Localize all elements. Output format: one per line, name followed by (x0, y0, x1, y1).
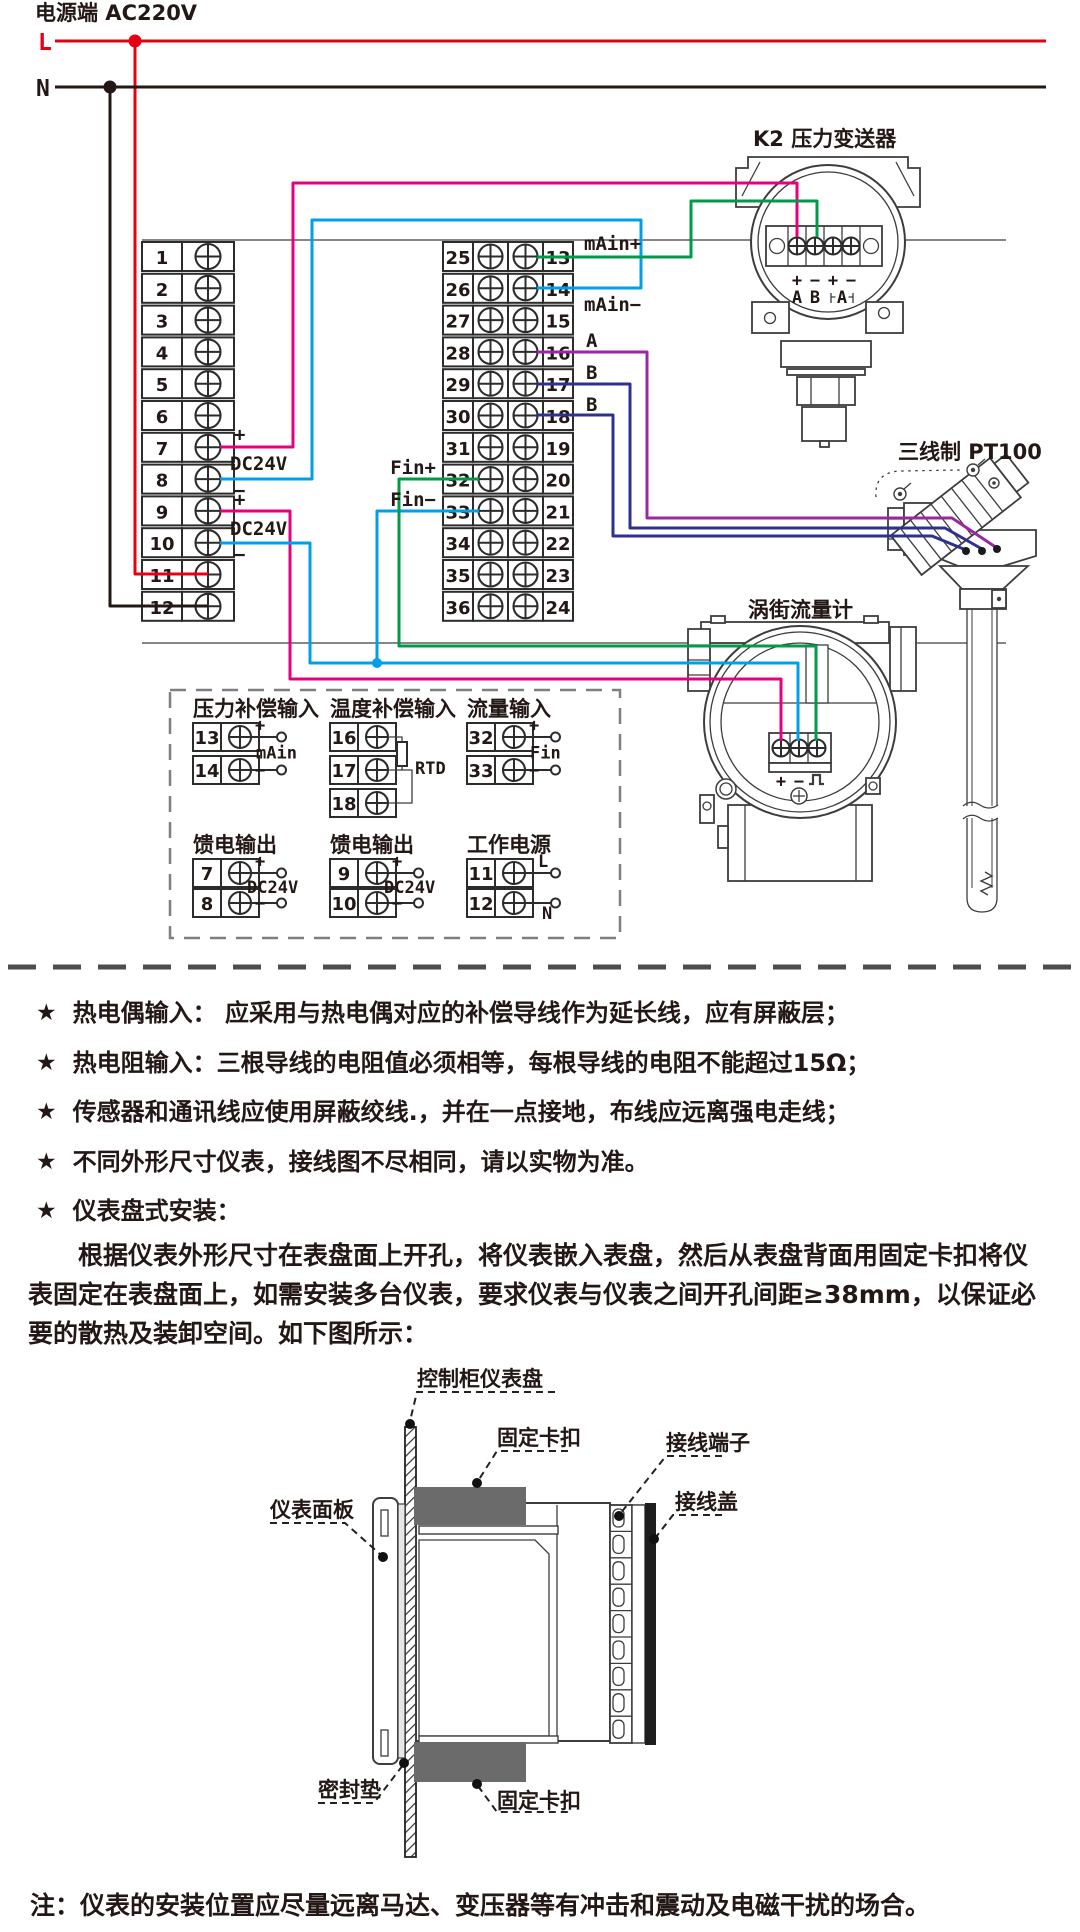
note-item: ★热电偶输入： 应采用与热电偶对应的补偿导线作为延长线，应有屏蔽层； (36, 1000, 870, 1028)
screw-terminal-icon (514, 435, 538, 459)
meter-case-window (419, 1540, 549, 1736)
fin-minus-label: Fin− (390, 489, 436, 511)
flowmeter-terminal-screws (773, 740, 826, 757)
terminal-number: 18 (545, 407, 570, 428)
flowmeter-plus-mark: + (776, 772, 786, 792)
terminal-number: 1 (156, 248, 169, 269)
transmitter-ammeter-mark: A (837, 288, 847, 308)
screw-terminal-icon (196, 435, 221, 460)
label-cover: 接线盖 (675, 1490, 738, 1514)
screw-terminal-icon (503, 862, 525, 884)
note-text: 仪表盘式安装： (73, 1198, 241, 1226)
polarity-sign: − (255, 761, 265, 781)
vortex-title: 涡街流量计 (748, 598, 853, 622)
terminal-number: 2 (156, 280, 169, 301)
terminal-number: 27 (445, 312, 470, 333)
label-gasket: 密封垫 (318, 1778, 381, 1802)
vortex-flowmeter: + − (688, 616, 916, 881)
wiring-diagram: 电源端 AC220V L N 123456789101112 251326142… (0, 0, 1080, 985)
transmitter-terminal-name: A (792, 288, 802, 308)
screw-terminal-icon (366, 726, 388, 748)
note-item: ★传感器和通讯线应使用屏蔽绞线.，并在一点接地，布线应远离强电走线； (36, 1099, 870, 1127)
screw-terminal-icon (229, 759, 251, 781)
terminal-number: 28 (445, 343, 470, 364)
terminal-number: 25 (445, 248, 470, 269)
terminal-number: 35 (445, 566, 470, 587)
screw-terminal-icon (791, 740, 808, 757)
screw-terminal-icon (514, 531, 538, 555)
sealing-gasket (398, 1504, 405, 1758)
screw-terminal-icon (196, 339, 221, 364)
screw-terminal-icon (514, 467, 538, 491)
b-label: B (586, 394, 597, 416)
note-text: 不同外形尺寸仪表，接线图不尽相同，请以实物为准。 (73, 1149, 649, 1177)
terminal-number: 12 (149, 598, 174, 619)
terminal-number: 8 (201, 894, 214, 915)
terminal-function-group: 工作电源11L12N (467, 833, 560, 924)
screw-terminal-icon (514, 276, 538, 300)
star-icon: ★ (36, 1000, 57, 1026)
screw-terminal-icon (514, 563, 538, 587)
terminal-number: 32 (445, 471, 470, 492)
fixing-clip-bottom (414, 1742, 526, 1782)
rtd-label: RTD (415, 759, 446, 779)
transmitter-terminal-name: B (810, 288, 820, 308)
transmitter-title: K2 压力变送器 (753, 127, 897, 151)
fixing-clip-top (414, 1487, 526, 1525)
manual-page: 电源端 AC220V L N 123456789101112 251326142… (0, 0, 1080, 1932)
polarity-sign: L (538, 852, 548, 872)
a-label: A (586, 330, 598, 352)
terminal-number: 26 (445, 280, 470, 301)
screw-terminal-icon (503, 759, 525, 781)
screw-terminal-icon (789, 238, 806, 255)
wire-end-icon (551, 766, 560, 775)
screw-terminal-icon (843, 238, 860, 255)
wire-end-icon (277, 733, 286, 742)
screw-terminal-icon (503, 892, 525, 914)
dc24v1-label: DC24V (230, 453, 287, 475)
screw-terminal-icon (479, 435, 503, 459)
terminal-number: 16 (545, 343, 570, 364)
terminal-number: 23 (545, 566, 570, 587)
note-text: 传感器和通讯线应使用屏蔽绞线.，并在一点接地，布线应远离强电走线； (73, 1099, 850, 1127)
terminal-number: 13 (194, 728, 219, 749)
power-title: 电源端 AC220V (35, 1, 198, 25)
screw-terminal-icon (366, 792, 388, 814)
terminal-function-group: 流量输入32+33−Fin (467, 697, 561, 784)
screw-terminal-icon (514, 499, 538, 523)
screw-terminal-icon (196, 498, 221, 523)
polarity-sign: − (529, 761, 539, 781)
rtd-resistor-icon (397, 742, 407, 766)
terminal-number: 4 (156, 343, 169, 364)
star-icon: ★ (36, 1099, 57, 1125)
terminal-number: 15 (545, 312, 570, 333)
group-title: 温度补偿输入 (330, 697, 456, 721)
terminal-function-group: 馈电输出9+10−DC24V (330, 833, 435, 917)
terminal-number: 17 (331, 761, 356, 782)
screw-terminal-icon (479, 499, 503, 523)
terminal-number: 6 (156, 407, 169, 428)
polarity-sign: + (255, 716, 265, 736)
terminal-number: 10 (331, 894, 356, 915)
star-icon: ★ (36, 1149, 57, 1175)
wire-end-icon (414, 899, 423, 908)
group-mid-label: DC24V (247, 878, 298, 898)
terminal-number: 22 (545, 534, 570, 555)
terminal-number: 7 (201, 864, 214, 885)
screw-terminal-icon (514, 308, 538, 332)
screw-terminal-icon (196, 403, 221, 428)
screw-terminal-icon (514, 245, 538, 269)
screw-terminal-icon (196, 276, 221, 301)
screw-terminal-icon (809, 740, 826, 757)
dc24v2-minus: − (234, 544, 245, 566)
screw-terminal-icon (196, 308, 221, 333)
screw-terminal-icon (479, 563, 503, 587)
note-text: 热电阻输入：三根导线的电阻值必须相等，每根导线的电阻不能超过15Ω； (73, 1050, 871, 1078)
note-item: ★不同外形尺寸仪表，接线图不尽相同，请以实物为准。 (36, 1149, 870, 1177)
screw-terminal-icon (479, 308, 503, 332)
screw-terminal-icon (479, 467, 503, 491)
terminal-number: 19 (545, 439, 570, 460)
fin-plus-label: Fin+ (390, 457, 436, 479)
wire-dc24v-minus-to-main-minus (220, 220, 641, 479)
label-clip-top: 固定卡扣 (497, 1426, 581, 1450)
pt100-terminal-dot (962, 547, 970, 555)
terminal-function-group: 馈电输出7+8−DC24V (193, 833, 298, 917)
terminal-number: 18 (331, 794, 356, 815)
instrument-front-panel (373, 1498, 398, 1764)
terminal-number: 24 (545, 598, 570, 619)
screw-terminal-icon (366, 759, 388, 781)
wire-end-icon (551, 869, 560, 878)
terminal-number: 10 (149, 534, 174, 555)
polarity-sign: N (542, 904, 552, 924)
screw-terminal-icon (479, 531, 503, 555)
screw-terminal-icon (479, 372, 503, 396)
terminal-number: 33 (445, 502, 470, 523)
label-clip-bottom: 固定卡扣 (497, 1789, 581, 1813)
terminal-number: 14 (545, 280, 570, 301)
pt100-terminal-dot (978, 547, 986, 555)
terminal-number: 17 (545, 375, 570, 396)
star-icon: ★ (36, 1050, 57, 1076)
terminal-number: 30 (445, 407, 470, 428)
terminal-number: 8 (156, 471, 169, 492)
screw-terminal-icon (773, 740, 790, 757)
terminal-number: 36 (445, 598, 470, 619)
terminal-number: 5 (156, 375, 169, 396)
screw-terminal-icon (229, 726, 251, 748)
label-terminals: 接线端子 (666, 1431, 750, 1455)
terminal-number: 14 (194, 761, 219, 782)
terminal-function-groups: 压力补偿输入13+14−mAin温度补偿输入161718RTD流量输入32+33… (193, 697, 561, 924)
screw-terminal-icon (514, 340, 538, 364)
wire-end-icon (277, 766, 286, 775)
line-n-label: N (36, 76, 50, 102)
label-cabinet-panel: 控制柜仪表盘 (417, 1367, 543, 1391)
note-item: ★仪表盘式安装： (36, 1198, 870, 1226)
terminal-number: 34 (445, 534, 470, 555)
screw-terminal-icon (196, 371, 221, 396)
terminal-number: 3 (156, 312, 169, 333)
group-mid-label: DC24V (384, 878, 435, 898)
terminal-number: 16 (331, 728, 356, 749)
terminal-strip-spacer (632, 1505, 645, 1743)
polarity-sign: + (529, 716, 539, 736)
pt100-title: 三线制 PT100 (898, 440, 1042, 464)
group-mid-label: Fin (530, 744, 561, 764)
wire-end-icon (277, 869, 286, 878)
screw-terminal-icon (196, 467, 221, 492)
screw-terminal-icon (479, 594, 503, 618)
junction-dot-blue (372, 658, 382, 668)
terminal-number: 31 (445, 439, 470, 460)
star-icon: ★ (36, 1198, 57, 1224)
dc24v2-label: DC24V (230, 518, 287, 540)
screw-terminal-icon (479, 245, 503, 269)
screw-terminal-icon (514, 404, 538, 428)
terminal-number: 9 (156, 502, 169, 523)
terminal-number: 20 (545, 471, 570, 492)
panel-mount-paragraph: 根据仪表外形尺寸在表盘面上开孔，将仪表嵌入表盘，然后从表盘背面用固定卡扣将仪表固… (28, 1236, 1042, 1353)
line-l-label: L (38, 30, 52, 56)
screw-terminal-icon (807, 238, 824, 255)
group-mid-label: mAin (256, 744, 297, 764)
terminal-number: 9 (338, 864, 351, 885)
terminal-number: 11 (468, 864, 493, 885)
main-minus-label: mAin− (584, 294, 641, 316)
screw-terminal-icon (514, 594, 538, 618)
note-text: 热电偶输入： 应采用与热电偶对应的补偿导线作为延长线，应有屏蔽层； (73, 1000, 849, 1028)
b-label: B (586, 362, 597, 384)
transmitter-polarity-mark: − (846, 271, 856, 291)
footnote: 注：仪表的安装位置应尽量远离马达、变压器等有冲击和震动及电磁干扰的场合。 (30, 1886, 1060, 1922)
screw-terminal-icon (503, 726, 525, 748)
pt100-terminal-dot (993, 545, 1001, 553)
wire-end-icon (551, 733, 560, 742)
dc24v1-plus: + (234, 424, 245, 446)
terminal-number: 32 (468, 728, 493, 749)
polarity-sign: + (392, 852, 402, 872)
wire-end-icon (551, 899, 560, 908)
terminal-number: 12 (468, 894, 493, 915)
screw-terminal-icon (479, 340, 503, 364)
terminal-number: 33 (468, 761, 493, 782)
terminal-block-left: 123456789101112 (142, 242, 234, 621)
wire-end-icon (277, 899, 286, 908)
screw-terminal-icon (479, 276, 503, 300)
terminal-number: 7 (156, 439, 169, 460)
terminal-number: 21 (545, 502, 570, 523)
installation-diagram: 控制柜仪表盘 固定卡扣 接线端子 接线盖 仪表面板 密封垫 固定卡扣 (0, 1360, 1080, 1870)
screw-terminal-icon (196, 530, 221, 555)
screw-terminal-icon (825, 238, 842, 255)
screw-terminal-icon (196, 244, 221, 269)
dc24v2-plus: + (234, 489, 245, 511)
terminal-number: 29 (445, 375, 470, 396)
terminal-function-group: 压力补偿输入13+14−mAin (193, 697, 319, 784)
polarity-sign: + (255, 852, 265, 872)
terminal-function-group: 温度补偿输入161718RTD (330, 697, 456, 817)
screw-terminal-icon (514, 372, 538, 396)
label-front-panel: 仪表面板 (269, 1498, 355, 1522)
terminal-number: 11 (149, 566, 174, 587)
main-plus-label: mAin+ (584, 233, 641, 255)
terminal-block-right: 2513261427152816291730183119322033213422… (443, 242, 573, 621)
screw-terminal-icon (479, 404, 503, 428)
wire-end-icon (414, 869, 423, 878)
note-item: ★热电阻输入：三根导线的电阻值必须相等，每根导线的电阻不能超过15Ω； (36, 1050, 870, 1078)
notes-list: ★热电偶输入： 应采用与热电偶对应的补偿导线作为延长线，应有屏蔽层； ★热电阻输… (36, 1000, 870, 1226)
